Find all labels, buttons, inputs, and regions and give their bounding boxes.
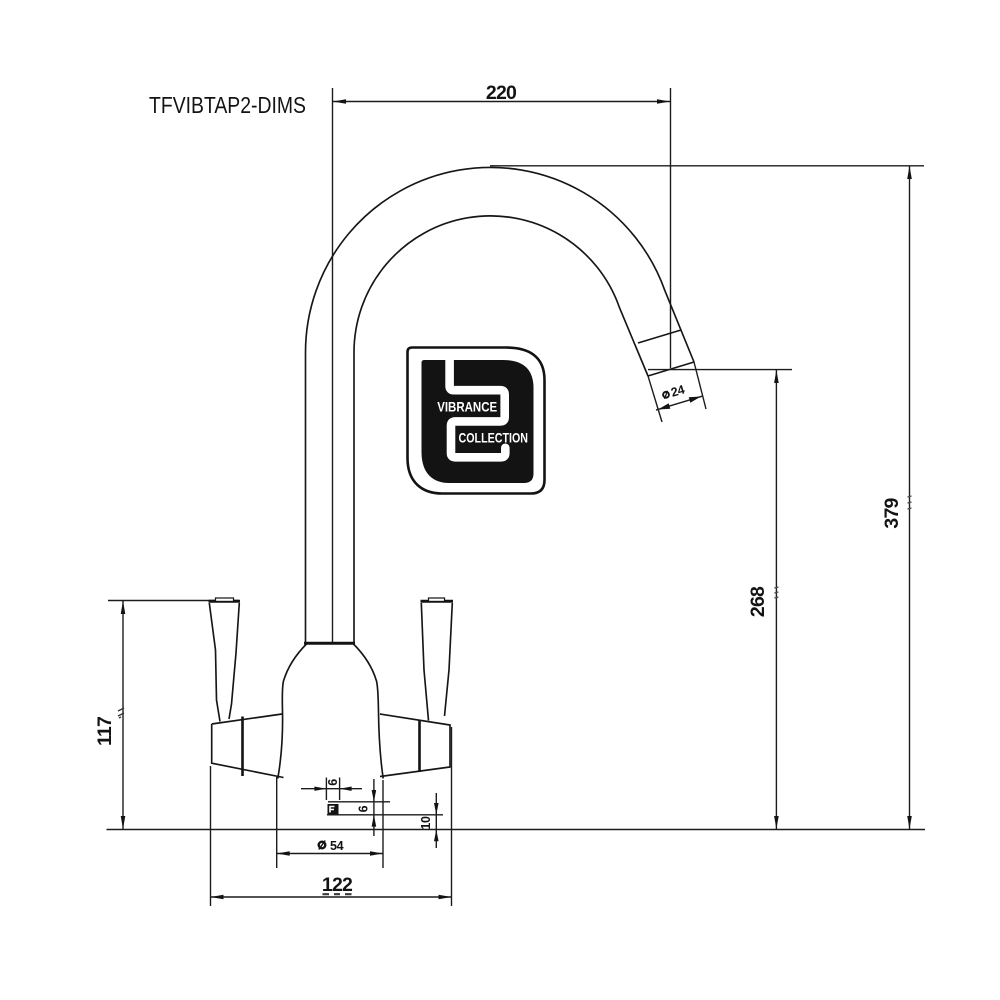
svg-text:VIBRANCE: VIBRANCE <box>437 398 497 414</box>
svg-text:TFVIBTAP2-DIMS: TFVIBTAP2-DIMS <box>149 92 306 118</box>
svg-text:54: 54 <box>330 839 344 853</box>
svg-text:122: 122 <box>322 874 353 896</box>
svg-text:10: 10 <box>419 816 433 830</box>
svg-text:6: 6 <box>357 805 371 812</box>
svg-text:379: 379 <box>881 497 903 528</box>
svg-text:COLLECTION: COLLECTION <box>459 430 529 446</box>
svg-text:117: 117 <box>94 717 116 746</box>
svg-text:6: 6 <box>326 779 340 786</box>
svg-text:268: 268 <box>747 586 769 617</box>
svg-text:220: 220 <box>486 82 517 104</box>
